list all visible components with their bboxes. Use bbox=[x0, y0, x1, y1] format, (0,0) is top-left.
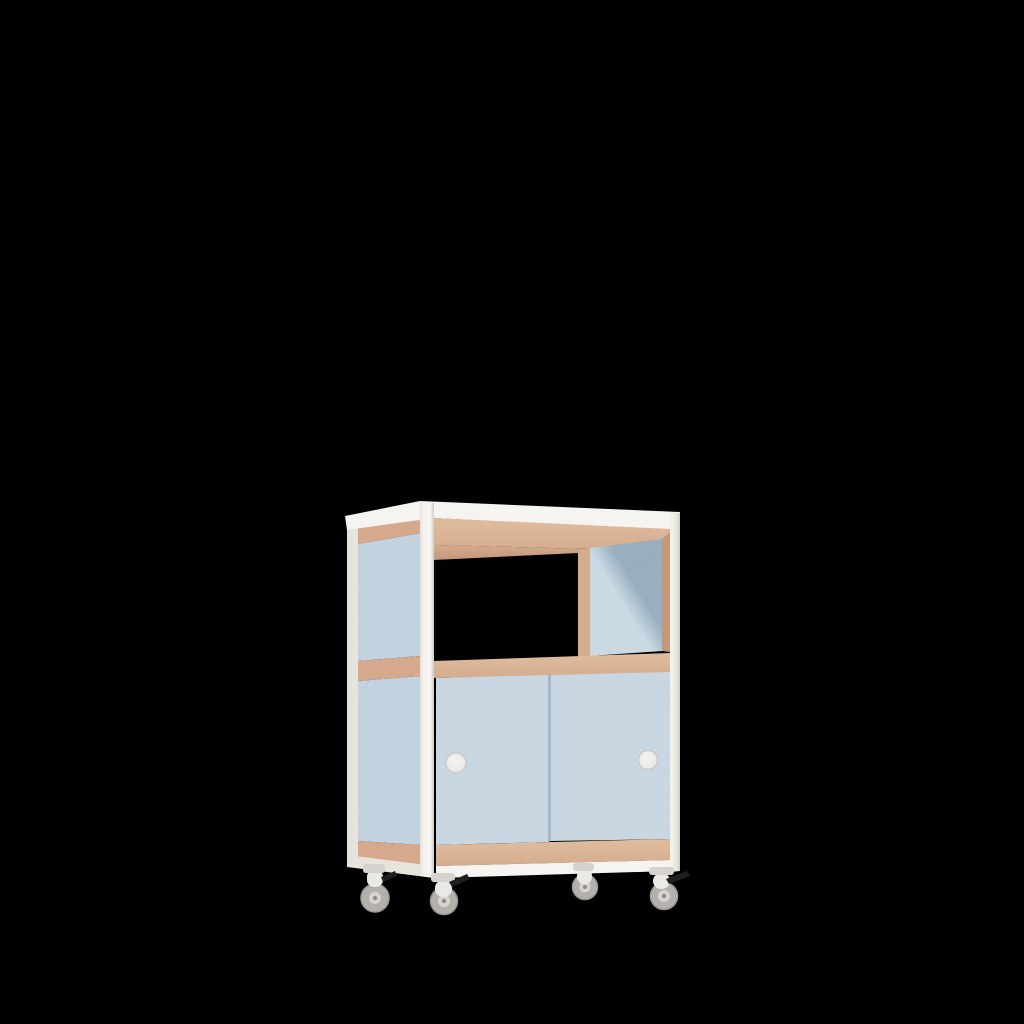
caster-back-right bbox=[573, 863, 598, 900]
caster-back-right-fork bbox=[577, 869, 592, 884]
product-render-canvas bbox=[0, 0, 1024, 1024]
inner-edge-strip-right bbox=[662, 532, 670, 652]
back-left-post bbox=[347, 514, 358, 862]
caster-back-left-axle bbox=[373, 896, 377, 900]
caster-front-right-axle bbox=[662, 894, 666, 898]
caster-back-right-plate bbox=[573, 863, 594, 871]
front-right-post bbox=[670, 512, 680, 872]
render-stage bbox=[0, 0, 1024, 1024]
caster-front-left-plate bbox=[431, 873, 455, 882]
caster-back-right-axle bbox=[583, 885, 587, 889]
caster-front-left-axle bbox=[442, 899, 446, 903]
front-left-post bbox=[420, 501, 434, 878]
caster-back-left-plate bbox=[363, 864, 385, 873]
cabinet bbox=[340, 495, 690, 925]
caster-front-right-plate bbox=[649, 867, 674, 875]
open-compartment bbox=[434, 553, 578, 661]
inner-edge-strip-left bbox=[578, 548, 590, 657]
